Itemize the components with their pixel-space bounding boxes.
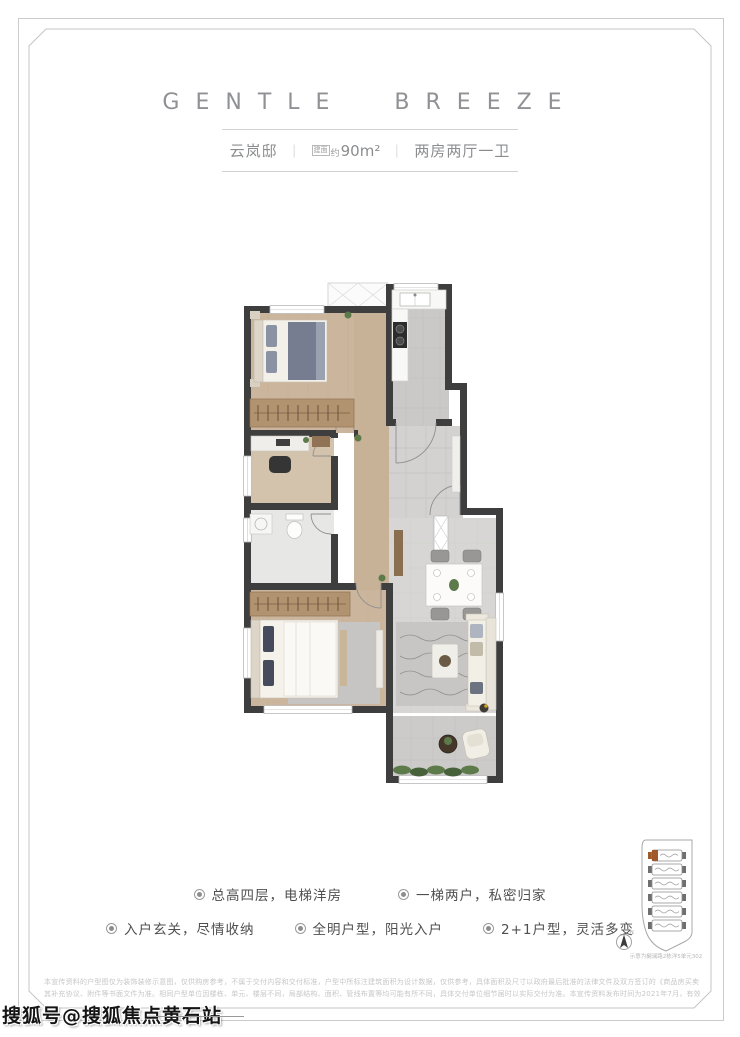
- area-group: 建面 约 90m²: [312, 142, 381, 160]
- disclaimer-line-2: 其补充协议、附件等书面文件为准。相同户型单位因楼栋、单元、楼层不同，局部结构、面…: [44, 989, 700, 1001]
- disclaimer: 本宣传资料的户型图仅为装饰装修示意图，仅供购房参考，不属于交付内容和交付标准，户…: [44, 977, 700, 1000]
- divider: ｜: [390, 141, 404, 160]
- bullet-icon: [483, 923, 494, 934]
- area-value: 90m²: [341, 142, 381, 160]
- bullet-icon: [106, 923, 117, 934]
- watermark-underline: [152, 1016, 244, 1017]
- coffee-table: [432, 644, 458, 678]
- feature-label: 入户玄关，尽情收纳: [124, 918, 255, 938]
- bullet-icon: [398, 889, 409, 900]
- feature-item: 入户玄关，尽情收纳: [106, 918, 255, 938]
- feature-item: 总高四层，电梯洋房: [194, 884, 343, 904]
- master-wardrobe: [250, 592, 350, 616]
- page-title: GENTLE BREEZE: [0, 90, 740, 115]
- disclaimer-line-1: 本宣传资料的户型图仅为装饰装修示意图，仅供购房参考，不属于交付内容和交付标准，户…: [44, 977, 700, 989]
- feature-row-2: 入户玄关，尽情收纳 全明户型，阳光入户 2+1户型，灵活多变: [106, 918, 634, 938]
- compass-label: N: [630, 930, 634, 936]
- feature-item: 一梯两户，私密归家: [398, 884, 547, 904]
- floor-plan: [236, 278, 508, 793]
- bullet-icon: [295, 923, 306, 934]
- compass-icon: N: [617, 930, 635, 950]
- sofa: [466, 614, 496, 711]
- watermark: 搜狐号@搜狐焦点黄石站: [2, 1001, 222, 1028]
- bullet-icon: [194, 889, 205, 900]
- feature-item: 全明户型，阳光入户: [295, 918, 444, 938]
- feature-row-1: 总高四层，电梯洋房 一梯两户，私密归家: [194, 884, 547, 904]
- subtitle-bar: 云岚邸 ｜ 建面 约 90m² ｜ 两房两厅一卫: [222, 129, 518, 172]
- side-table: [480, 704, 489, 713]
- poster-page: GENTLE BREEZE 云岚邸 ｜ 建面 约 90m² ｜ 两房两厅一卫: [0, 0, 740, 1037]
- equipment-platform: [328, 283, 388, 307]
- site-location-diagram: N 示意为樾澜路2栋洋5单元302: [608, 836, 724, 962]
- master-bed: [251, 620, 383, 704]
- divider: ｜: [288, 141, 302, 160]
- area-approx: 约: [331, 146, 340, 159]
- layout-text: 两房两厅一卫: [414, 140, 510, 161]
- bedroom2-wardrobe: [250, 399, 354, 427]
- site-diagram-caption: 示意为樾澜路2栋洋5单元302: [630, 952, 703, 960]
- feature-label: 总高四层，电梯洋房: [212, 884, 343, 904]
- feature-label: 一梯两户，私密归家: [416, 884, 547, 904]
- feature-label: 全明户型，阳光入户: [313, 918, 444, 938]
- area-box-icon: 建面: [312, 145, 330, 156]
- project-name: 云岚邸: [230, 140, 278, 161]
